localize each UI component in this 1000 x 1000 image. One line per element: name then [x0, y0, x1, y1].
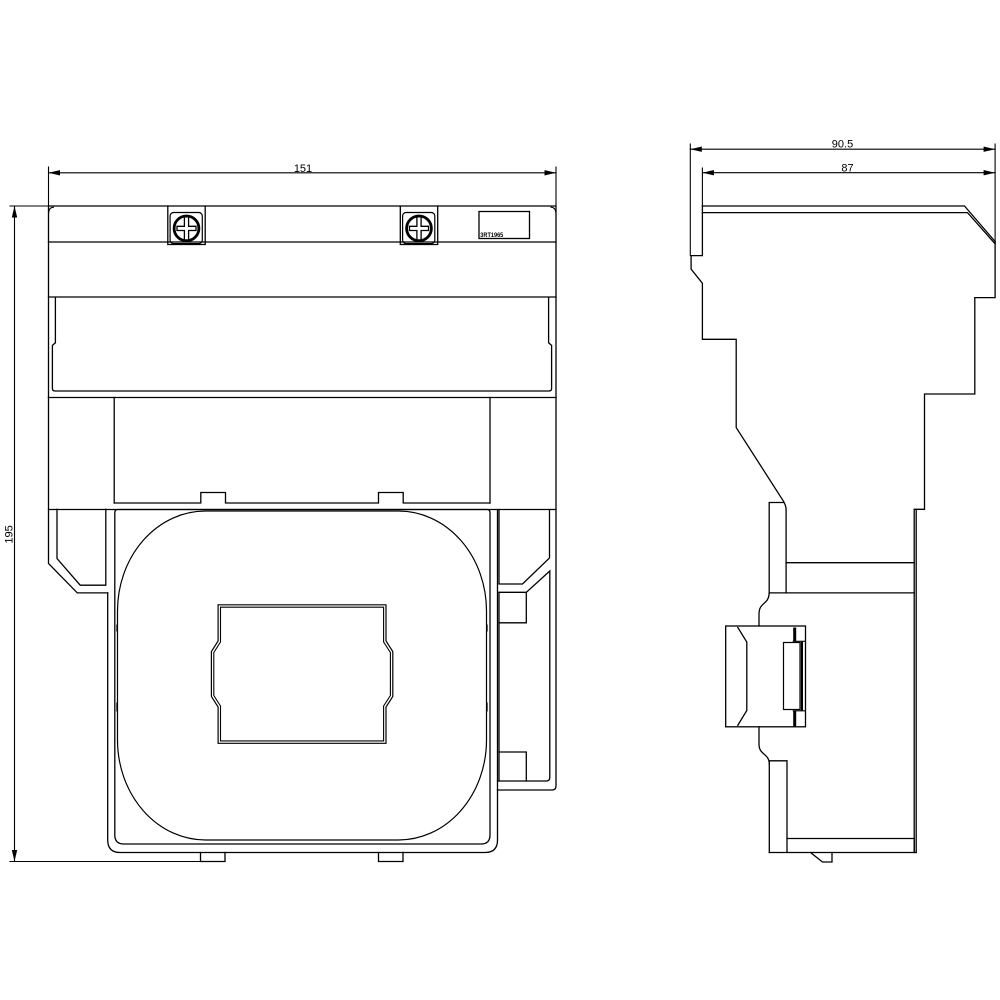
- svg-text:87: 87: [841, 162, 853, 174]
- svg-text:90.5: 90.5: [832, 139, 853, 151]
- svg-text:3RT1965: 3RT1965: [480, 232, 503, 239]
- svg-text:195: 195: [4, 525, 16, 543]
- svg-text:151: 151: [294, 163, 312, 175]
